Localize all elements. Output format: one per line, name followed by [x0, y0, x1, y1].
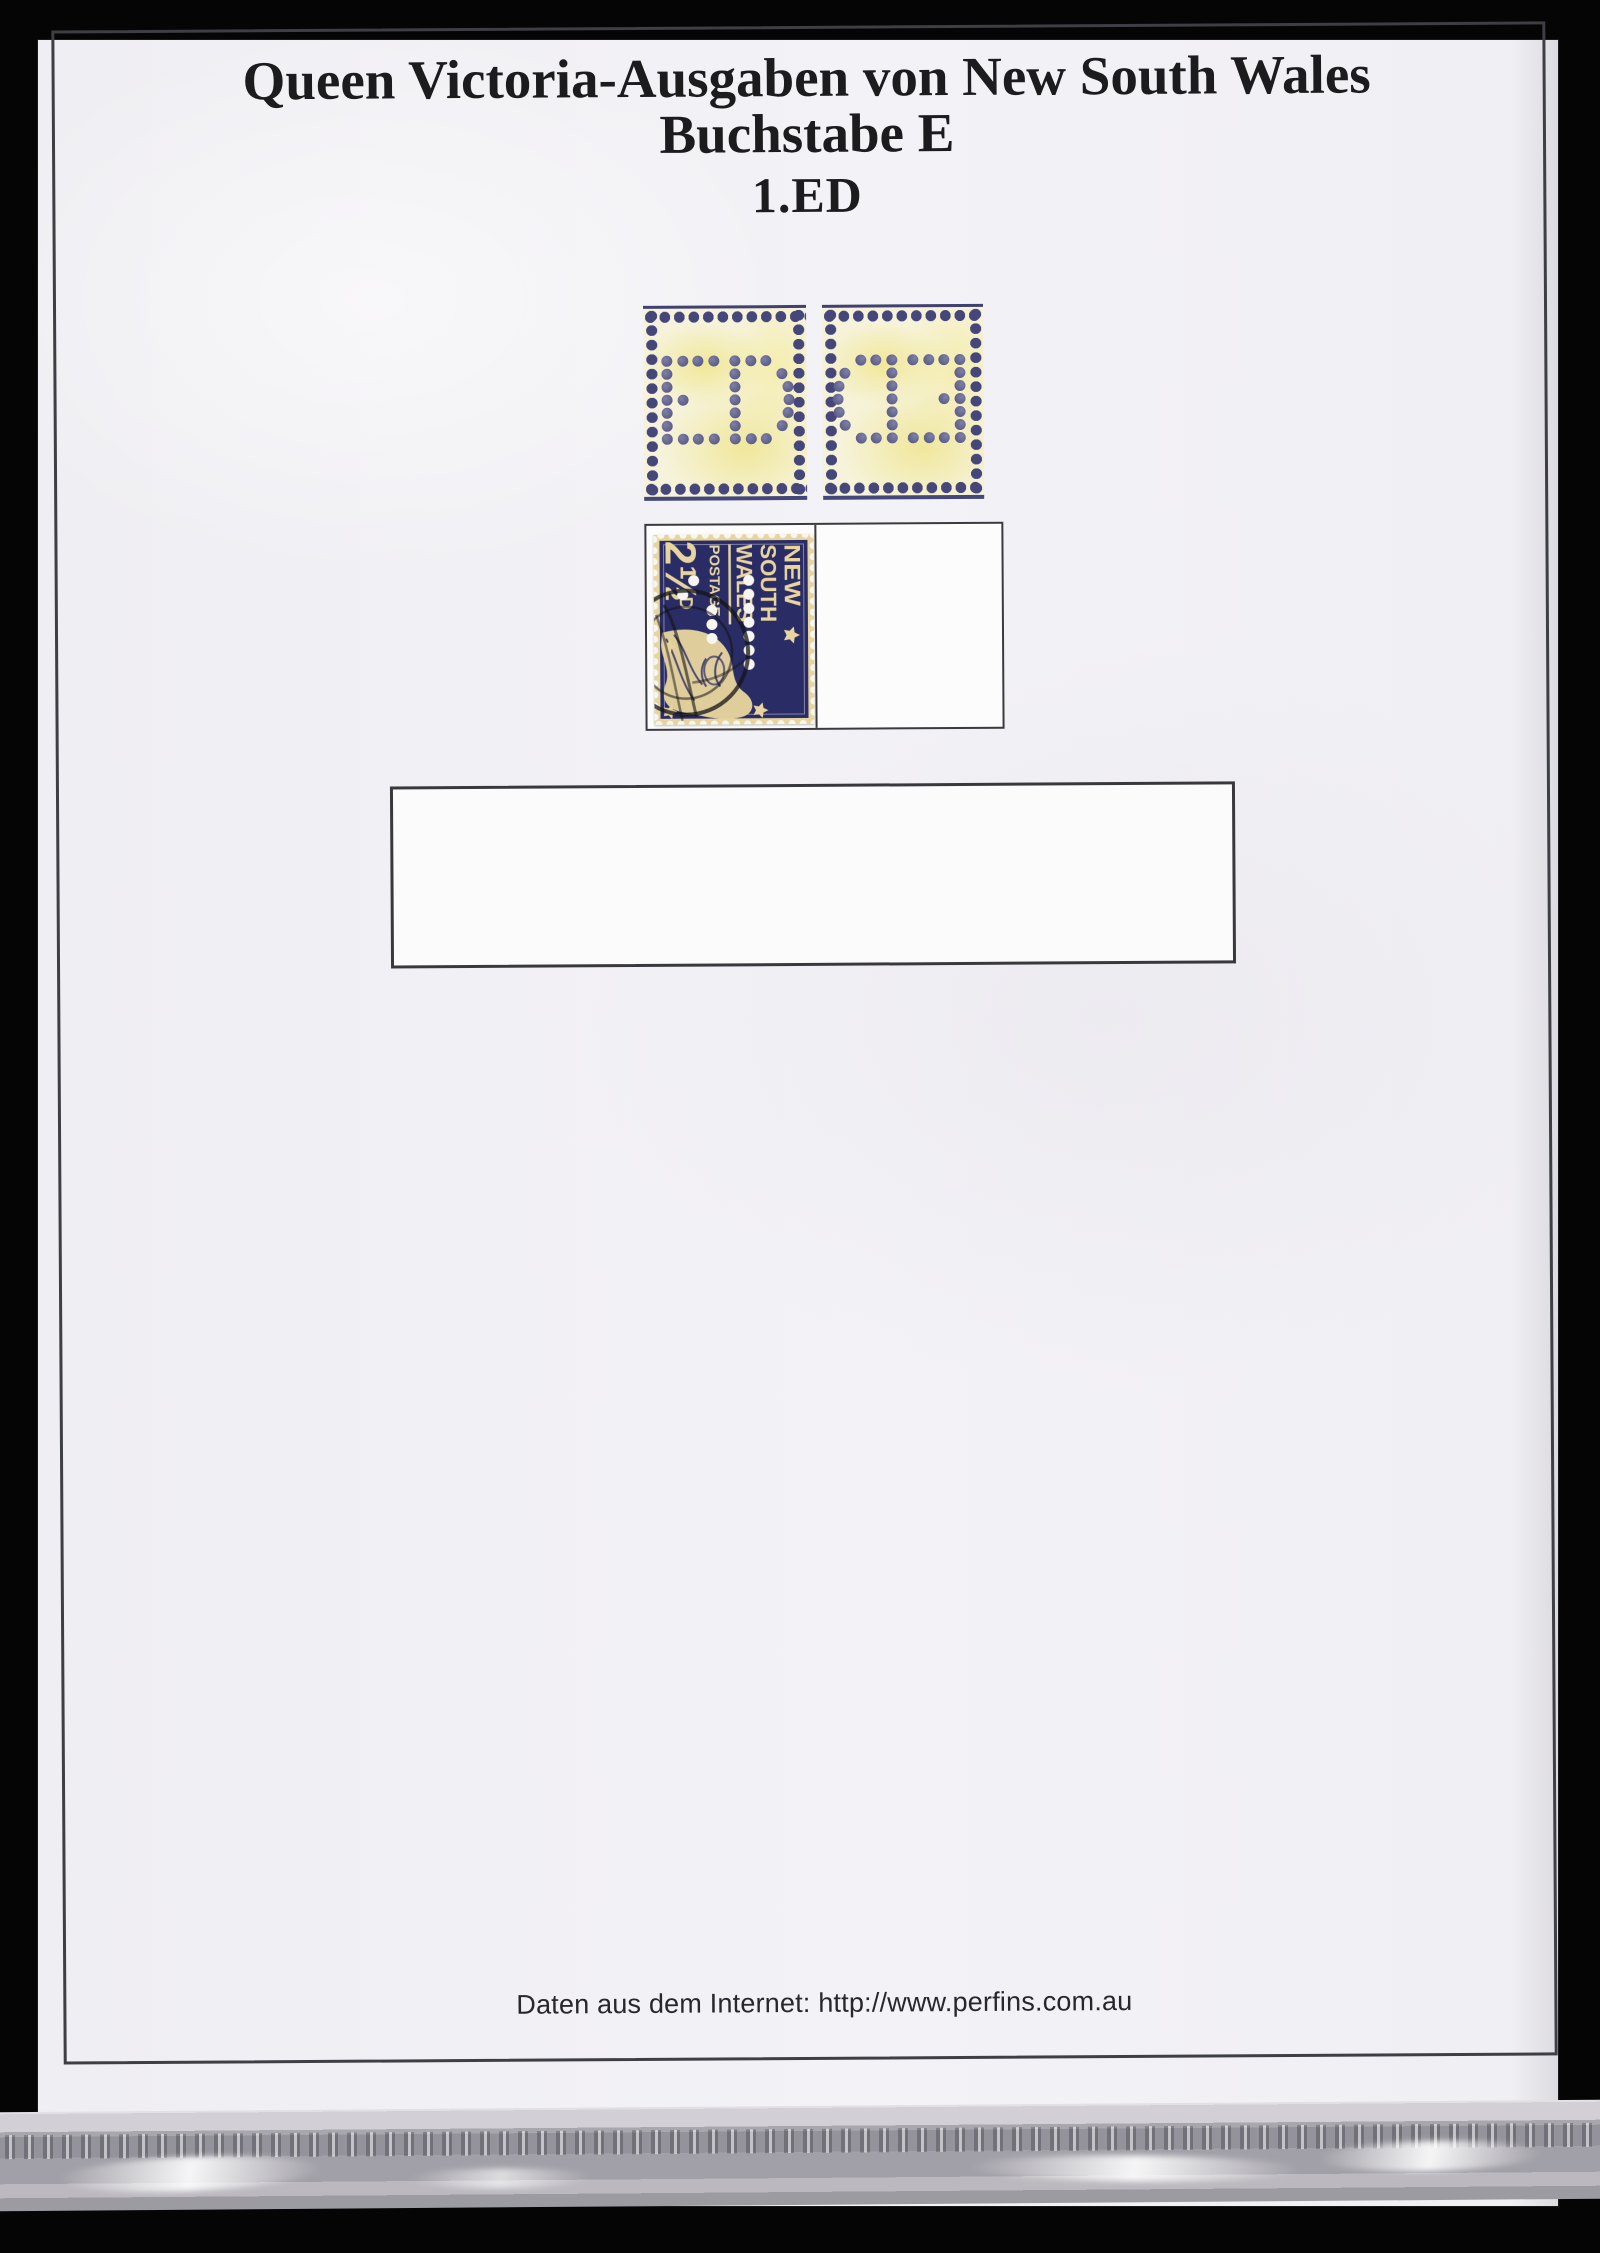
- perfin-dot: [886, 380, 897, 391]
- perfin-dot: [693, 434, 704, 445]
- nsw-stamp-art: NEW SOUTH WALES POSTAGE 2½ D: [653, 534, 814, 725]
- perfin-letters-ed-mirrored: [822, 307, 984, 496]
- country-line-2: SOUTH: [755, 544, 780, 622]
- perfin-dot: [677, 434, 688, 445]
- perfin-dot: [955, 406, 966, 417]
- perfin-dot: [887, 406, 898, 417]
- perfin-specimen-back-mirrored: [822, 304, 984, 500]
- perfin-dot: [677, 395, 688, 406]
- empty-mount-box: [390, 781, 1236, 968]
- perfin-dot: [887, 393, 898, 404]
- perfin-dot: [871, 432, 882, 443]
- perfin-dot: [939, 354, 950, 365]
- perfin-dot: [708, 355, 719, 366]
- perfin-dot: [661, 369, 672, 380]
- perfin-dot: [856, 433, 867, 444]
- perfin-dot: [908, 354, 919, 365]
- perfin-dot: [729, 381, 740, 392]
- perfin-dot: [908, 432, 919, 443]
- perfin-dot: [708, 433, 719, 444]
- perfin-dot: [662, 421, 673, 432]
- perfin-dot: [939, 432, 950, 443]
- perfin-dot: [832, 394, 843, 405]
- perfin-dot: [760, 355, 771, 366]
- perfin-dot: [661, 356, 672, 367]
- title-line-3: 1.ED: [60, 164, 1554, 225]
- country-line-1: NEW: [779, 544, 804, 606]
- perfin-dot: [782, 381, 793, 392]
- perfin-dot: [692, 356, 703, 367]
- perfin-dot: [840, 420, 851, 431]
- page-content: Queen Victoria-Ausgaben von New South Wa…: [31, 35, 1564, 2210]
- perfin-dot: [871, 354, 882, 365]
- perfin-dot: [730, 433, 741, 444]
- perfin-dot: [776, 420, 787, 431]
- perfin-dot: [955, 393, 966, 404]
- stamp-mount-box: NEW SOUTH WALES POSTAGE 2½ D: [644, 522, 1004, 731]
- perfin-dot: [784, 394, 795, 405]
- perfin-dot: [782, 407, 793, 418]
- perfin-dot: [662, 408, 673, 419]
- album-page: Queen Victoria-Ausgaben von New South Wa…: [38, 40, 1558, 2206]
- perfin-dot: [745, 355, 756, 366]
- perfin-dot: [730, 407, 741, 418]
- perfin-dot: [954, 380, 965, 391]
- scanned-album-photo: Queen Victoria-Ausgaben von New South Wa…: [0, 0, 1600, 2253]
- perfin-dot: [661, 382, 672, 393]
- perfin-dot: [955, 419, 966, 430]
- perfin-dot: [955, 432, 966, 443]
- perfin-dot: [834, 407, 845, 418]
- sleeve-glare: [970, 2154, 1300, 2183]
- perfin-dot: [886, 354, 897, 365]
- perfin-dot: [924, 432, 935, 443]
- perfin-specimen-front: [643, 305, 807, 501]
- perfin-dot: [662, 434, 673, 445]
- perfin-dot: [729, 368, 740, 379]
- page-heading: Queen Victoria-Ausgaben von New South Wa…: [59, 43, 1554, 225]
- perfin-dot: [954, 367, 965, 378]
- perfin-dot: [886, 367, 897, 378]
- plastic-sleeve-strip: [0, 2100, 1600, 2212]
- title-line-2: Buchstabe E: [60, 103, 1554, 164]
- sleeve-glare: [410, 2168, 590, 2189]
- perfin-dot: [662, 395, 673, 406]
- perfin-dot: [729, 355, 740, 366]
- perfin-dot: [923, 354, 934, 365]
- perfin-dot: [776, 368, 787, 379]
- perfin-letters-ed: [643, 308, 807, 497]
- perfin-dot: [887, 432, 898, 443]
- mount-box-divider: [814, 525, 817, 728]
- perfin-dot: [677, 356, 688, 367]
- perfin-dot: [855, 355, 866, 366]
- perfin-dot: [761, 433, 772, 444]
- perfin-dot: [840, 368, 851, 379]
- perfin-dot: [939, 393, 950, 404]
- perfin-dot: [954, 354, 965, 365]
- perfin-dot: [730, 394, 741, 405]
- perfin-dot: [730, 420, 741, 431]
- nsw-blue-stamp: NEW SOUTH WALES POSTAGE 2½ D: [653, 534, 814, 725]
- perfin-dot: [887, 419, 898, 430]
- perfin-dot: [745, 433, 756, 444]
- perfin-dot: [834, 381, 845, 392]
